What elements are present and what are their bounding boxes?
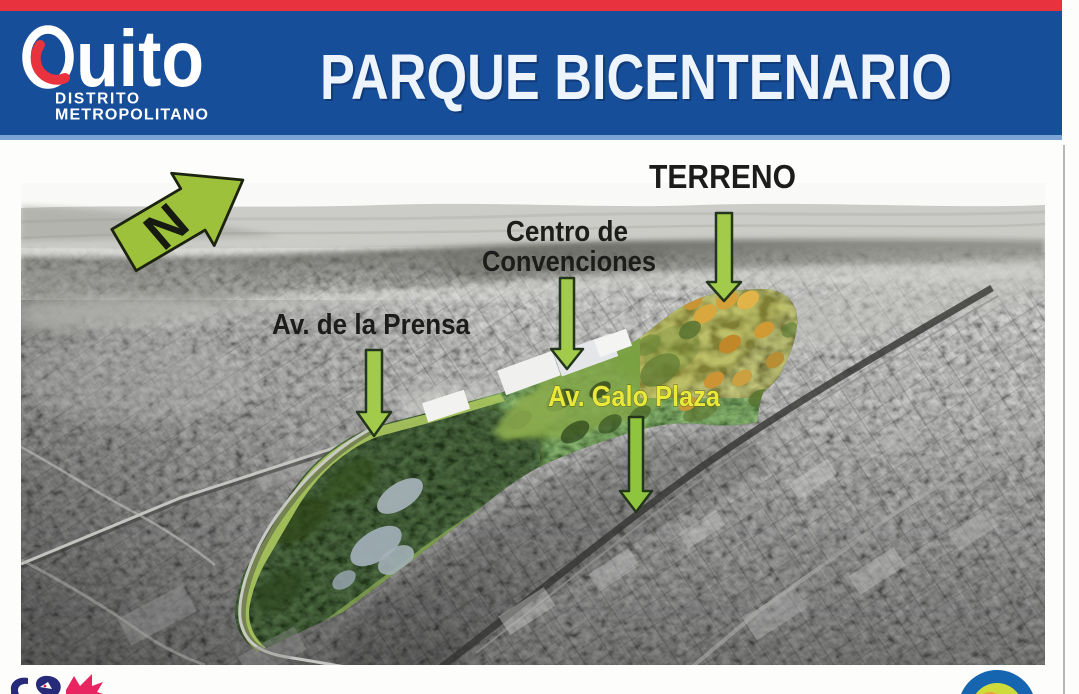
svg-text:DISTRITO: DISTRITO	[55, 91, 139, 108]
svg-text:PARQUE BICENTENARIO: PARQUE BICENTENARIO	[320, 41, 952, 113]
svg-text:Av. de la Prensa: Av. de la Prensa	[272, 309, 471, 341]
svg-text:Av. Galo Plaza: Av. Galo Plaza	[548, 381, 721, 413]
svg-text:Convenciones: Convenciones	[482, 246, 656, 278]
svg-text:Centro de: Centro de	[506, 216, 628, 248]
svg-text:TERRENO: TERRENO	[649, 158, 796, 195]
svg-text:METROPOLITANO: METROPOLITANO	[55, 107, 208, 124]
